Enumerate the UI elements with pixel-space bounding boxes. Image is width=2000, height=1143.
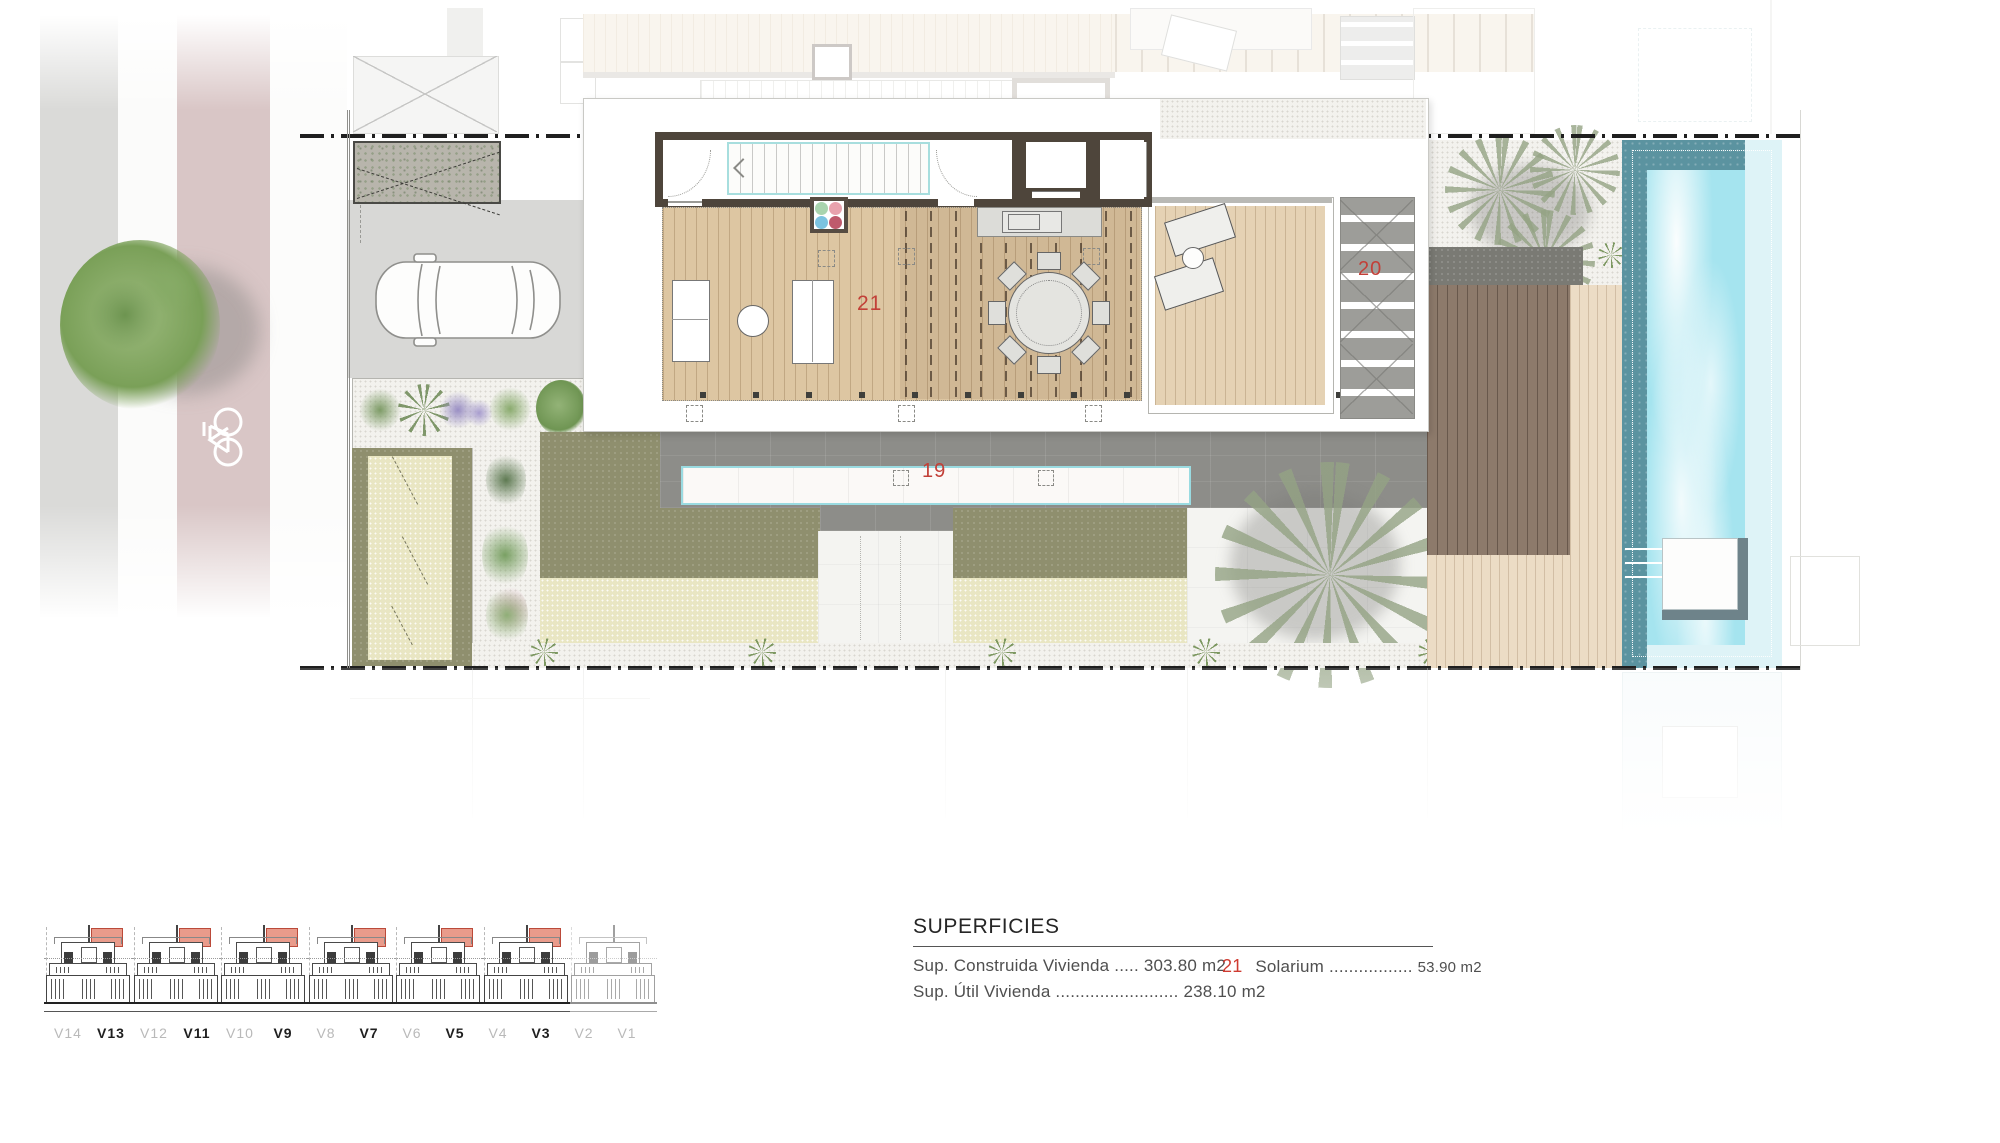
upper-floor [149,942,203,965]
reference-dotted-line [44,958,132,959]
upper-floor [324,942,378,965]
upper-floor [586,942,640,965]
window-hatch [432,979,446,999]
villa-elevation-group [396,925,480,1017]
bottom-fade [0,668,2000,853]
trellis-planter [353,141,501,204]
ghost-louver-stair [1340,16,1415,80]
upper-floor [61,942,115,965]
villa-elevation-group [309,925,393,1017]
side-table-round [1182,247,1204,269]
villa-label-v2: V2 [564,1025,604,1041]
ground-line [307,1002,395,1012]
pool-step [1625,548,1662,550]
column-marker [898,248,915,265]
elevator-door [1032,191,1080,198]
louver-x [1340,344,1413,414]
site-plan-canvas: 21 20 19 V14V13V12V11V10V9V8V7V6V5V4V3V2… [0,0,2000,1143]
stair-bulkhead [169,947,185,963]
reference-dotted-line [219,958,307,959]
window-hatch [194,967,208,973]
window-hatch [231,967,245,973]
window-hatch [314,979,328,999]
ground-floor [396,975,480,1003]
area-label-21: 21 [857,292,882,316]
reference-dotted-line [482,958,570,959]
elevator-cab [1026,142,1086,188]
window-hatch [406,967,420,973]
vine-plant-flowering [486,585,528,645]
villa-label-v10: V10 [220,1025,260,1041]
window-hatch [489,979,503,999]
path-dotted-line [900,536,901,640]
window-hatch [82,979,96,999]
legend-dots: ................. [1329,957,1413,976]
side-table-round [737,305,769,337]
sun-mattress-line [812,280,813,362]
legend-row-util: Sup. Útil Vivienda .....................… [913,982,1453,1002]
neighbor-outline-right [1790,556,1860,646]
ground-floor [571,975,655,1003]
stair-bulkhead [431,947,447,963]
sink-basin [1008,214,1040,230]
window-hatch [631,967,645,973]
ground-line [132,1002,220,1012]
skylight-circle-pink [829,202,842,215]
villa-elevation-group [571,925,655,1017]
column-marker [1085,405,1102,422]
lounger-deck-bar [1148,197,1332,203]
window-hatch [369,967,383,973]
planter-lavender [466,398,492,428]
window-hatch [607,979,621,999]
garden-olive-band-b [953,508,1187,578]
window-hatch [286,979,300,999]
window-hatch [281,967,295,973]
window-hatch [461,979,475,999]
window-hatch [111,979,125,999]
closet [1104,142,1147,197]
villa-elevation-group [484,925,568,1017]
stair-bulkhead [344,947,360,963]
window-hatch [319,967,333,973]
reference-dotted-line [307,958,395,959]
stair-bulkhead [81,947,97,963]
legend-dots: ..... [1114,956,1139,975]
ghost-skylight [812,44,852,80]
door-opening [938,198,974,206]
dining-chair [1037,356,1061,374]
window-hatch [257,979,271,999]
ground-line [219,1002,307,1012]
dining-chair [988,301,1006,325]
sun-mattress [672,280,710,362]
window-hatch [199,979,213,999]
ground-floor [484,975,568,1003]
window-hatch [139,979,153,999]
legend-row-solarium: 21 Solarium ................. 53.90 m2 [1222,956,1482,977]
ghost-margin-lines [1770,0,1772,134]
walnut-deck [1427,285,1570,555]
pool-step [1625,576,1662,578]
ghost-pool-outline [1638,28,1752,122]
column-marker [818,250,835,267]
column-marker [893,470,909,486]
window-hatch [636,979,650,999]
window-hatch [170,979,184,999]
ground-floor [134,975,218,1003]
pergola-slat-line [1130,209,1132,397]
pool-platform [1662,538,1738,610]
window-hatch [374,979,388,999]
ground-line [569,1002,657,1012]
legend-highlight-label: Solarium [1255,957,1324,976]
parking-bay-line [360,205,361,243]
reference-dotted-line [394,958,482,959]
upper-floor [236,942,290,965]
reference-dotted-line [132,958,220,959]
upper-floor [499,942,553,965]
skylight [810,197,848,233]
window-hatch [520,979,534,999]
ground-line [44,1002,132,1012]
ghost-outline [1413,8,1535,134]
garden-path-left [368,456,452,660]
villa-label-v1: V1 [607,1025,647,1041]
agave-plant [748,638,776,666]
garden-lawn-a [540,578,820,645]
legend-dots: ......................... [1055,982,1178,1001]
vine-plant [482,520,528,590]
pergola-slat-line [930,209,932,397]
street-tree-clump [140,255,200,315]
reference-dotted-line [569,958,657,959]
glass-door-line [668,201,702,203]
bicycle-icon [200,398,256,478]
window-hatch [144,967,158,973]
window-hatch [51,979,65,999]
villa-label-v14: V14 [48,1025,88,1041]
ground-floor [309,975,393,1003]
skylight-circle-green [815,202,828,215]
window-hatch [226,979,240,999]
villa-label-v11: V11 [177,1025,217,1041]
agave-plant [530,638,558,666]
staircase [727,142,930,195]
ground-line [482,1002,570,1012]
window-hatch [345,979,359,999]
villa-label-v9: V9 [263,1025,303,1041]
pergola-slat-line [980,209,982,397]
planter-shrub [490,386,530,432]
ground-floor [46,975,130,1003]
legend-highlight-value: 53.90 m2 [1418,959,1482,976]
ground-line [394,1002,482,1012]
stair-bulkhead [519,947,535,963]
street-fade-bottom [40,505,347,618]
legend-value: 238.10 m2 [1183,982,1265,1001]
pool-step [1625,562,1662,564]
villa-label-v4: V4 [478,1025,518,1041]
dark-planter-mid [1427,247,1583,285]
agave-plant [1192,638,1220,666]
window-hatch [401,979,415,999]
vine-plant [486,452,526,508]
upper-floor [411,942,465,965]
dining-chair [1037,252,1061,270]
sun-mattress [792,280,834,364]
garden-olive-band-a [540,508,820,578]
legend-title: SUPERFICIES [913,915,1453,939]
villa-label-v3: V3 [521,1025,561,1041]
garden-lawn-b [953,578,1187,645]
villa-label-v12: V12 [134,1025,174,1041]
window-hatch [456,967,470,973]
skylight-circle-maroon [829,216,842,229]
area-label-19: 19 [922,460,946,483]
area-label-20: 20 [1358,258,1382,281]
villa-label-v13: V13 [91,1025,131,1041]
window-hatch [549,979,563,999]
window-hatch [106,967,120,973]
window-hatch [494,967,508,973]
planter-tree [536,380,586,436]
villa-label-v5: V5 [435,1025,475,1041]
stair-bulkhead [606,947,622,963]
villa-elevation-group [221,925,305,1017]
pale-deck-bottom [1427,555,1570,668]
stair-bulkhead [256,947,272,963]
legend-highlight-number: 21 [1222,956,1242,976]
column-marker [686,405,703,422]
pergola-slat-line [905,209,907,397]
villa-label-v6: V6 [392,1025,432,1041]
palm-tree [1530,125,1620,215]
louver-x [1340,272,1413,342]
villa-elevation-group [134,925,218,1017]
ghost-trellis-x [353,56,497,132]
villa-elevation-group [46,925,130,1017]
car-top-view [362,250,574,350]
path-dotted-line [860,536,861,640]
small-plant [1598,242,1624,268]
legend-label: Sup. Construida Vivienda [913,956,1109,975]
window-hatch [581,967,595,973]
dining-table-inner [1016,280,1082,346]
legend-label: Sup. Útil Vivienda [913,982,1050,1001]
window-hatch [576,979,590,999]
pale-deck-right [1570,285,1622,668]
window-hatch [56,967,70,973]
skylight-circle-blue [815,216,828,229]
plot-boundary-left [347,110,350,668]
window-hatch [544,967,558,973]
ground-floor [221,975,305,1003]
column-marker [1038,470,1054,486]
villa-label-v7: V7 [349,1025,389,1041]
villa-label-v8: V8 [306,1025,346,1041]
column-marker [898,405,915,422]
sun-mattress-line [672,319,708,320]
agave-plant [988,638,1016,666]
gravel-inside-sheet [1160,99,1426,139]
pergola-slat-line [955,209,957,397]
dining-chair [1092,301,1110,325]
legend-value: 303.80 m2 [1144,956,1226,975]
white-path [818,531,953,645]
legend-divider [913,946,1433,947]
planter-shrub [360,388,400,432]
gray-step [820,501,953,531]
legend: SUPERFICIES Sup. Construida Vivienda ...… [913,915,1453,1002]
